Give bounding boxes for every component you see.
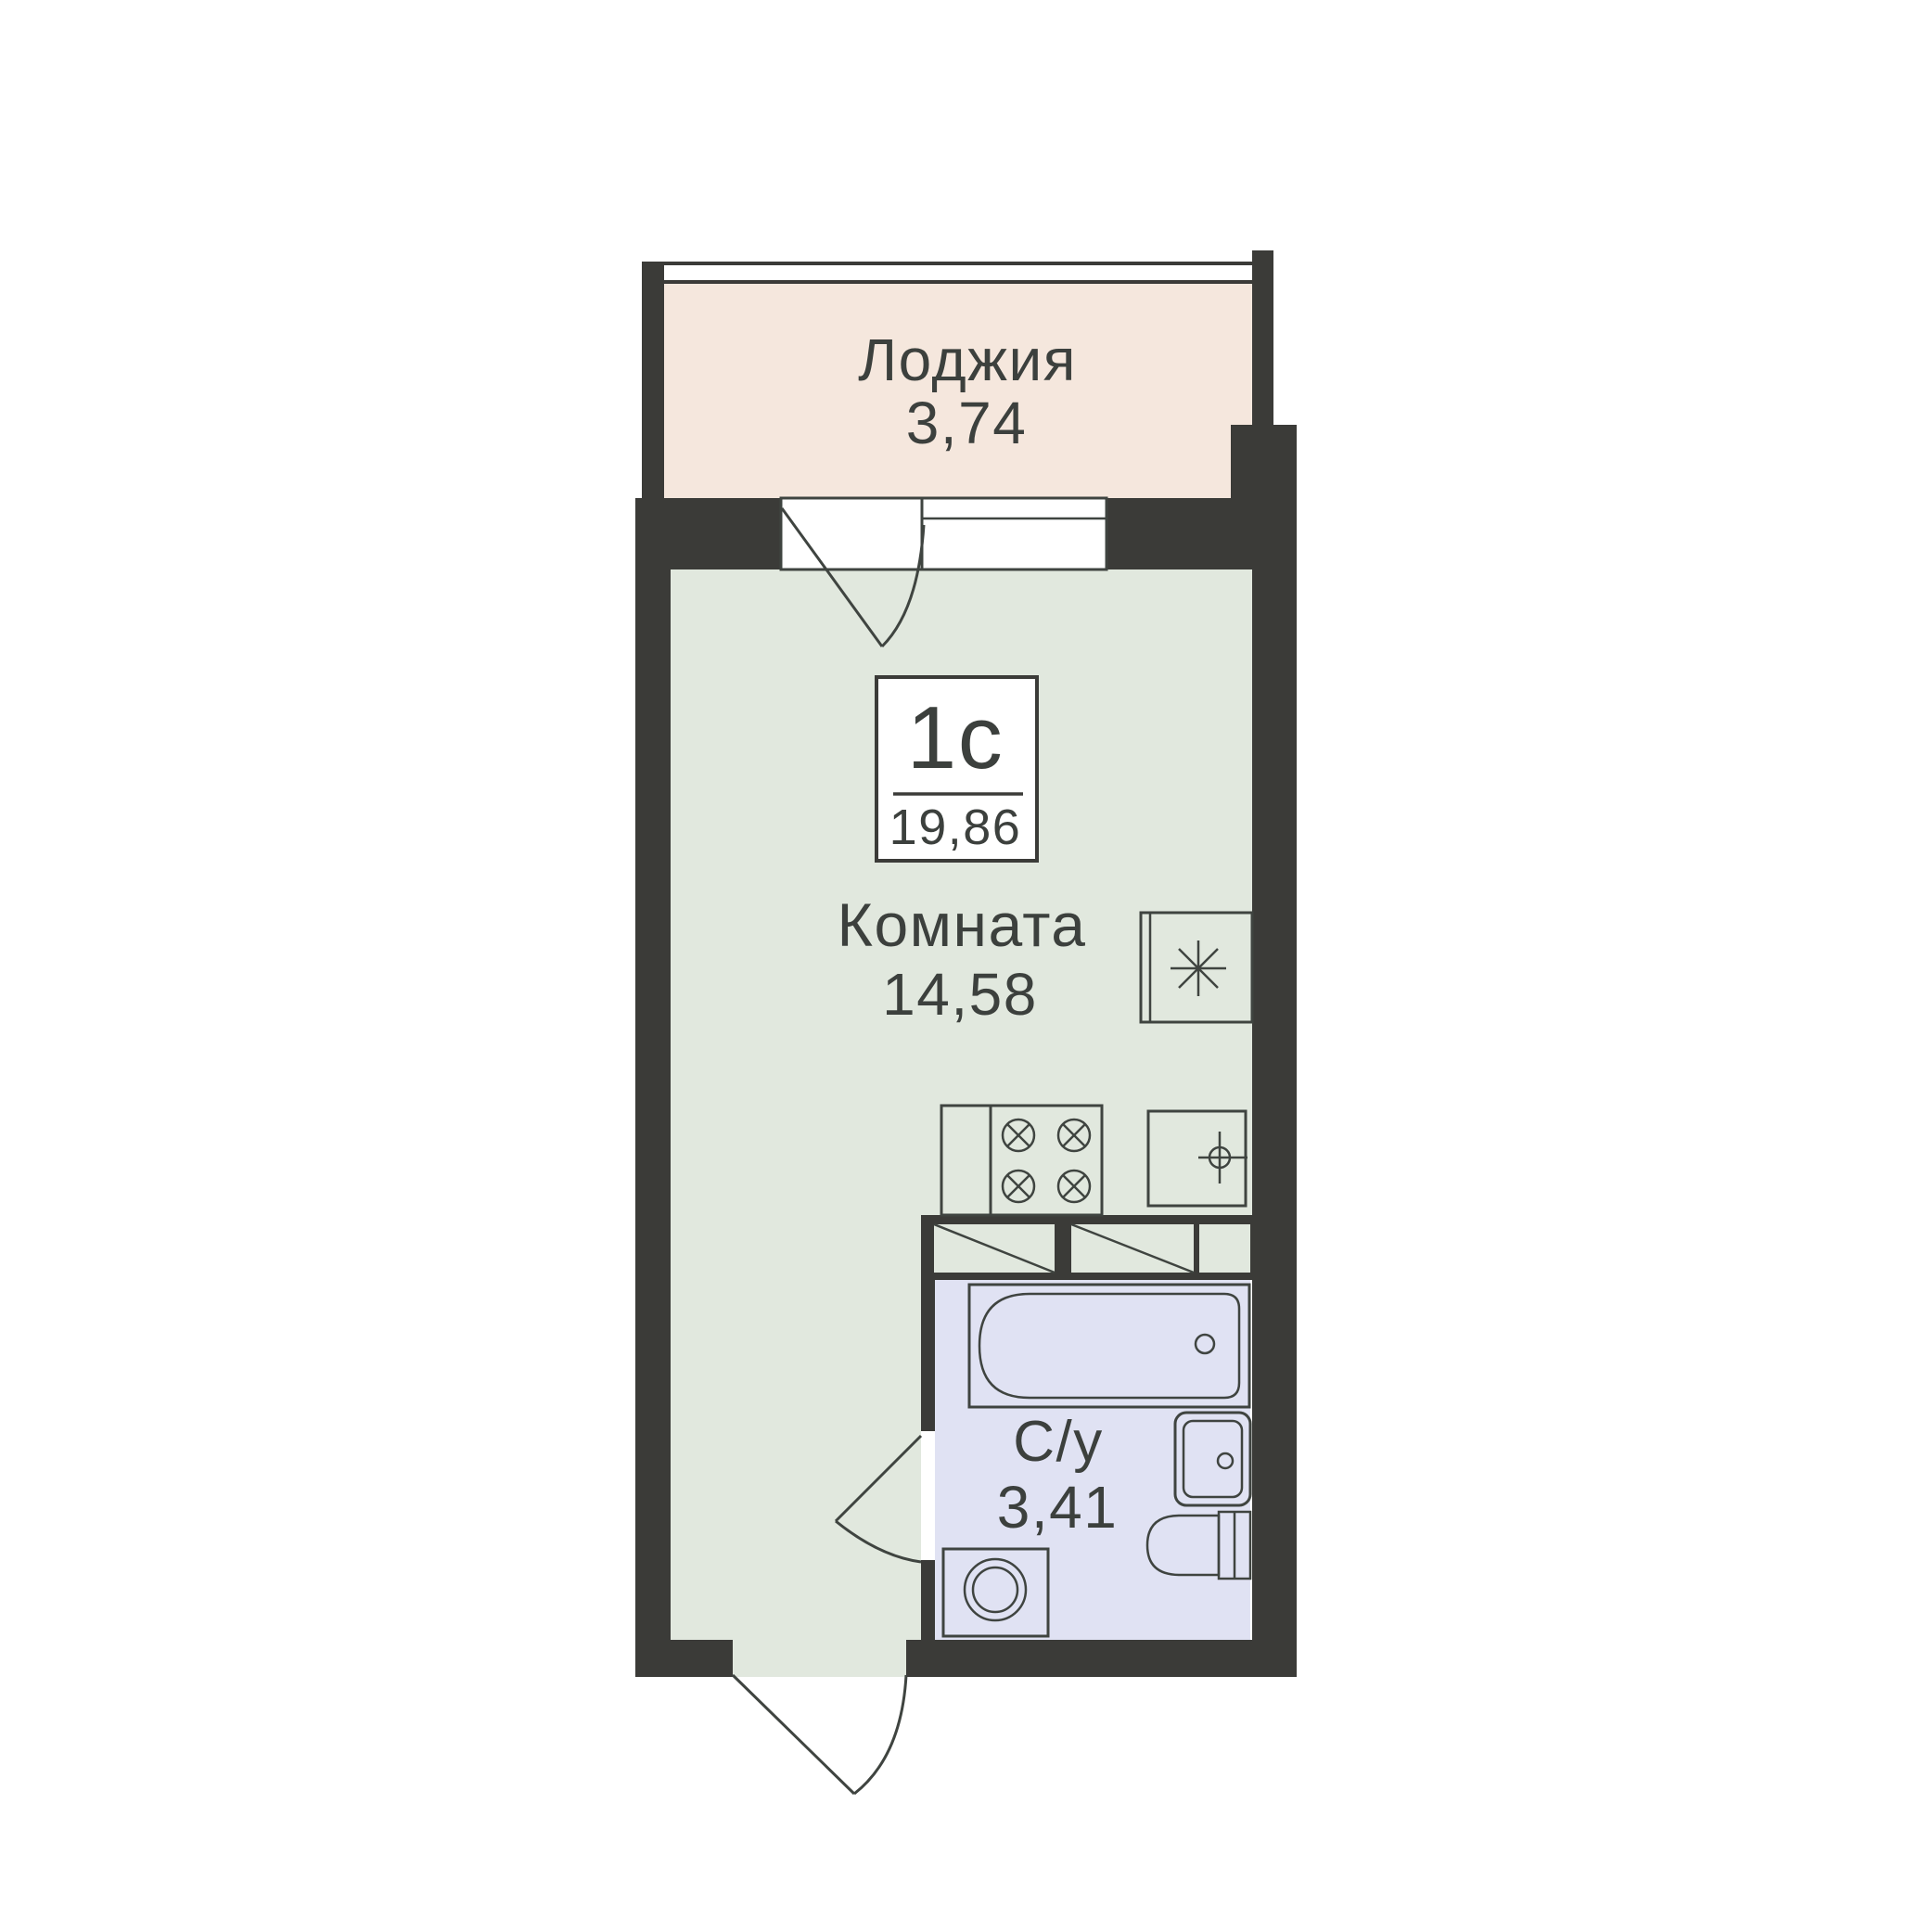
- floor-plan-svg: 1с 19,86 Лоджия 3,74 Комната 14,58 С/у 3…: [0, 0, 1932, 1932]
- loggia-rail-bottom-line: [664, 280, 1252, 284]
- right-corner-block: [1231, 425, 1297, 498]
- unit-type-badge: 1с 19,86: [876, 677, 1037, 861]
- loggia-label: Лоджия: [858, 326, 1077, 393]
- balcony-door-opening: [781, 498, 922, 569]
- unit-total-area: 19,86: [889, 800, 1022, 855]
- bottom-wall-right: [906, 1640, 1297, 1677]
- left-outer-wall: [635, 498, 671, 1677]
- entrance-door-swing-arc: [854, 1675, 906, 1794]
- loggia-rail-top-line: [664, 262, 1252, 265]
- bathroom-left-wall-lower: [921, 1560, 935, 1640]
- window-opening: [922, 498, 1107, 569]
- unit-type-label: 1с: [907, 688, 1004, 787]
- loggia-area: 3,74: [906, 390, 1028, 456]
- right-outer-wall: [1252, 498, 1297, 1677]
- duct-box-3: [1199, 1224, 1250, 1273]
- bathroom-left-wall-upper: [921, 1280, 935, 1431]
- entrance-door-leaf: [733, 1675, 854, 1794]
- loggia-left-wall: [642, 262, 664, 498]
- bathroom-label: С/у: [1013, 1410, 1104, 1474]
- loggia-right-column: [1252, 250, 1273, 425]
- bottom-wall-left: [635, 1640, 733, 1677]
- floor-plan: 1с 19,86 Лоджия 3,74 Комната 14,58 С/у 3…: [0, 0, 1932, 1932]
- bathroom-area: 3,41: [997, 1474, 1119, 1541]
- room-area: 14,58: [882, 961, 1038, 1028]
- room-label: Комната: [838, 890, 1087, 959]
